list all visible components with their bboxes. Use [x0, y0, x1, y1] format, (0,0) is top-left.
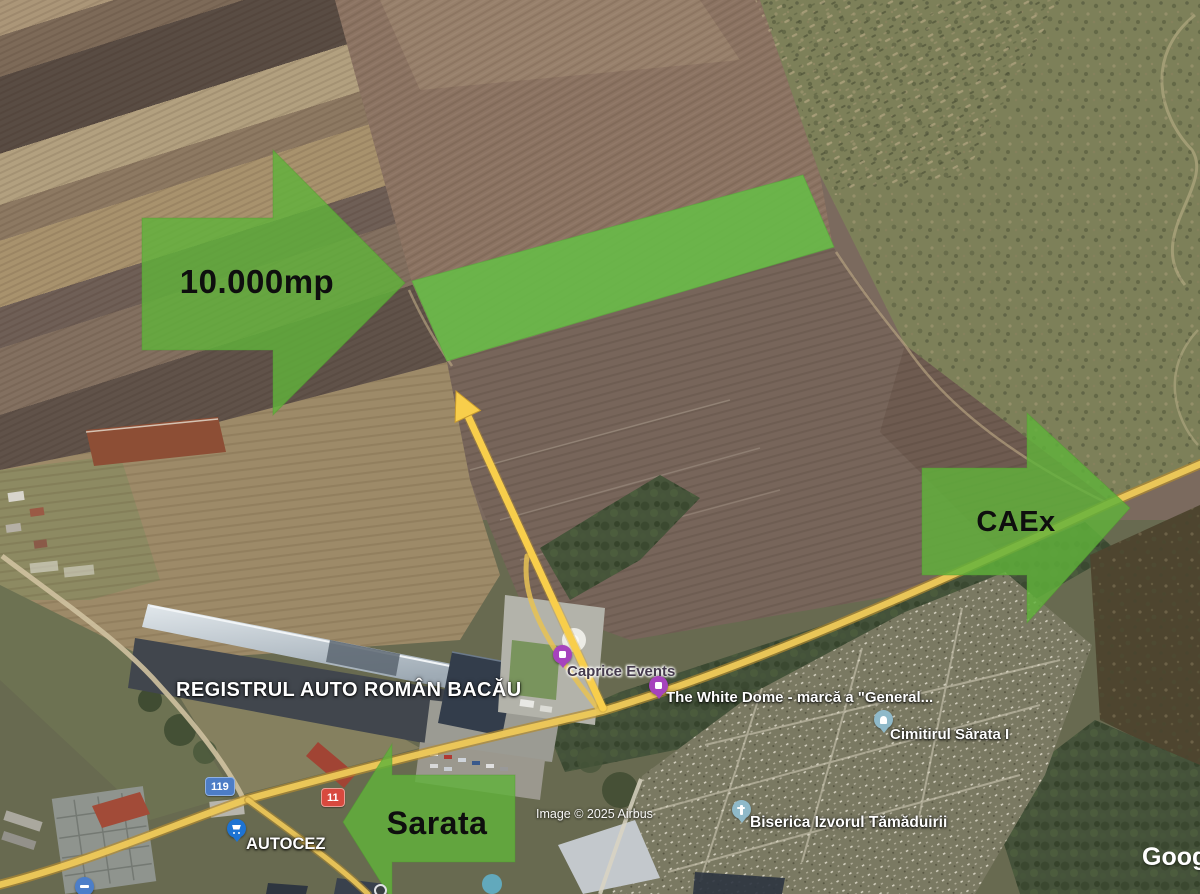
tombstone-icon [880, 716, 887, 724]
cemetery-label: Cimitirul Sărata I [890, 726, 1009, 743]
cemetery-pin[interactable] [874, 710, 893, 729]
autocez-store-pin[interactable] [227, 819, 246, 838]
road-badge-119: 119 [205, 777, 235, 796]
area-arrow-label: 10.000mp [147, 263, 367, 301]
church-pin[interactable] [732, 800, 751, 819]
church-label: Biserica Izvorul Tămăduirii [750, 814, 947, 832]
generic-poi-icon [80, 885, 89, 888]
partial-poi-pin[interactable] [75, 877, 94, 894]
autocez-label: AUTOCEZ [246, 835, 325, 854]
sarata-arrow-label: Sarata [376, 805, 498, 842]
caprice-events-pin[interactable] [553, 645, 572, 664]
small-marker-icon [374, 884, 387, 894]
event-venue-icon [559, 651, 566, 658]
caex-arrow-label: CAEx [951, 506, 1081, 539]
event-venue-icon [655, 682, 662, 689]
cross-icon [740, 805, 743, 815]
annotated-satellite-map: 10.000mp CAEx Sarata REGISTRUL AUTO ROMÂ… [0, 0, 1200, 894]
cart-wheels-icon [233, 832, 235, 834]
shopping-cart-icon [232, 825, 241, 830]
satellite-basemap [0, 0, 1200, 894]
white-dome-label: The White Dome - marcă a "General... [666, 689, 933, 706]
rar-label: REGISTRUL AUTO ROMÂN BACĂU [176, 679, 522, 702]
google-watermark: Google [1142, 843, 1200, 872]
imagery-credit: Image © 2025 Airbus [536, 807, 653, 821]
white-dome-pin[interactable] [649, 676, 668, 695]
road-badge-11: 11 [321, 788, 345, 807]
venue-white-dome [498, 595, 605, 725]
